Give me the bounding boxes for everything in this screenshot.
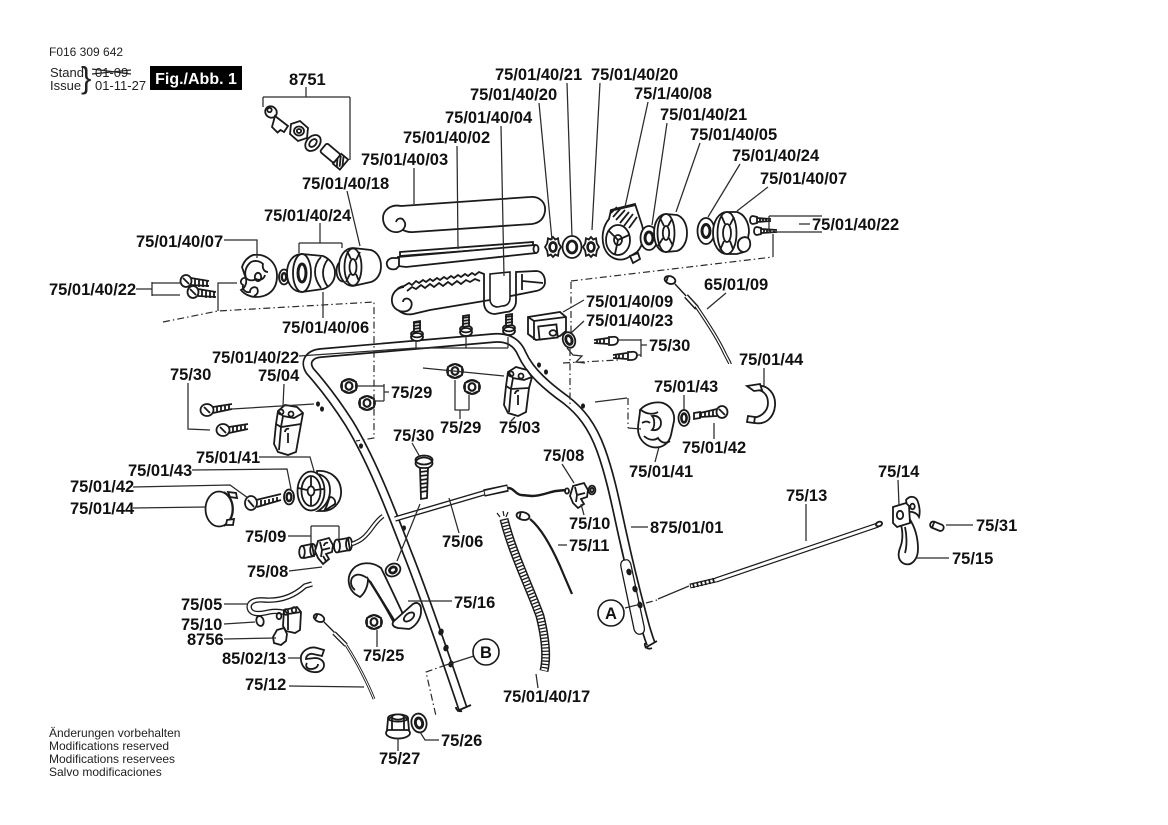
svg-text:01-11-27: 01-11-27 — [95, 78, 146, 93]
svg-text:75/01/40/04: 75/01/40/04 — [445, 109, 533, 127]
svg-text:8756: 8756 — [187, 631, 224, 649]
svg-text:75/01/44: 75/01/44 — [739, 351, 804, 369]
svg-text:75/01/41: 75/01/41 — [196, 449, 260, 467]
svg-text:875/01/01: 875/01/01 — [650, 519, 723, 537]
svg-text:65/01/09: 65/01/09 — [704, 276, 768, 294]
svg-text:75/30: 75/30 — [393, 427, 434, 445]
svg-text:Modifications reserved: Modifications reserved — [49, 739, 169, 753]
svg-text:75/30: 75/30 — [170, 366, 211, 384]
svg-text:75/29: 75/29 — [440, 419, 481, 437]
svg-text:}: } — [81, 60, 91, 95]
svg-text:F016 309 642: F016 309 642 — [49, 45, 123, 59]
svg-text:75/06: 75/06 — [442, 533, 483, 551]
svg-text:75/01/40/17: 75/01/40/17 — [503, 688, 590, 706]
svg-text:75/01/43: 75/01/43 — [128, 462, 192, 480]
svg-text:75/01/40/02: 75/01/40/02 — [403, 129, 490, 147]
svg-text:75/08: 75/08 — [247, 563, 288, 581]
svg-text:75/01/40/07: 75/01/40/07 — [760, 170, 847, 188]
svg-text:75/16: 75/16 — [454, 594, 495, 612]
svg-text:75/01/40/09: 75/01/40/09 — [586, 293, 673, 311]
svg-text:75/01/44: 75/01/44 — [70, 500, 135, 518]
svg-text:75/01/40/20: 75/01/40/20 — [470, 86, 557, 104]
svg-text:75/01/42: 75/01/42 — [682, 439, 746, 457]
svg-text:85/02/13: 85/02/13 — [222, 650, 286, 668]
svg-text:8751: 8751 — [289, 71, 326, 89]
svg-text:75/31: 75/31 — [976, 517, 1017, 535]
svg-text:75/01/40/07: 75/01/40/07 — [136, 233, 223, 251]
svg-text:75/01/40/21: 75/01/40/21 — [660, 106, 747, 124]
svg-text:75/01/40/23: 75/01/40/23 — [586, 312, 673, 330]
svg-text:75/01/40/21: 75/01/40/21 — [495, 66, 582, 84]
svg-text:75/13: 75/13 — [786, 487, 827, 505]
svg-text:75/15: 75/15 — [952, 550, 993, 568]
svg-text:75/01/40/22: 75/01/40/22 — [812, 216, 899, 234]
svg-text:Salvo modificaciones: Salvo modificaciones — [49, 765, 162, 779]
svg-text:75/01/41: 75/01/41 — [629, 463, 693, 481]
svg-text:75/12: 75/12 — [245, 676, 286, 694]
svg-text:75/04: 75/04 — [258, 367, 300, 385]
svg-text:75/01/40/22: 75/01/40/22 — [49, 281, 136, 299]
svg-text:75/26: 75/26 — [441, 732, 482, 750]
svg-text:75/03: 75/03 — [499, 419, 540, 437]
svg-text:A: A — [605, 605, 617, 623]
svg-text:75/01/40/20: 75/01/40/20 — [591, 66, 678, 84]
svg-text:Issue: Issue — [50, 78, 81, 93]
svg-text:Modifications reservees: Modifications reservees — [49, 752, 175, 766]
svg-text:75/01/40/22: 75/01/40/22 — [212, 349, 299, 367]
svg-text:75/01/40/24: 75/01/40/24 — [732, 147, 820, 165]
svg-text:75/01/40/06: 75/01/40/06 — [282, 319, 369, 337]
svg-text:75/09: 75/09 — [245, 528, 286, 546]
svg-text:75/01/43: 75/01/43 — [654, 378, 718, 396]
svg-text:75/05: 75/05 — [181, 596, 222, 614]
svg-text:75/29: 75/29 — [391, 384, 432, 402]
svg-text:75/01/40/05: 75/01/40/05 — [690, 126, 777, 144]
svg-text:75/08: 75/08 — [543, 447, 584, 465]
svg-text:75/27: 75/27 — [379, 750, 420, 768]
svg-text:75/30: 75/30 — [649, 337, 690, 355]
svg-text:75/11: 75/11 — [569, 537, 609, 555]
svg-text:75/1/40/08: 75/1/40/08 — [634, 85, 712, 103]
svg-text:B: B — [480, 644, 492, 662]
svg-text:75/25: 75/25 — [363, 647, 404, 665]
svg-text:75/01/40/18: 75/01/40/18 — [302, 175, 389, 193]
svg-text:75/10: 75/10 — [569, 515, 610, 533]
svg-text:75/01/40/24: 75/01/40/24 — [264, 207, 352, 225]
svg-text:75/01/42: 75/01/42 — [70, 478, 134, 496]
svg-text:Fig./Abb. 1: Fig./Abb. 1 — [155, 71, 237, 88]
svg-text:75/14: 75/14 — [878, 463, 920, 481]
svg-text:75/01/40/03: 75/01/40/03 — [361, 151, 448, 169]
svg-text:Änderungen vorbehalten: Änderungen vorbehalten — [49, 726, 180, 740]
